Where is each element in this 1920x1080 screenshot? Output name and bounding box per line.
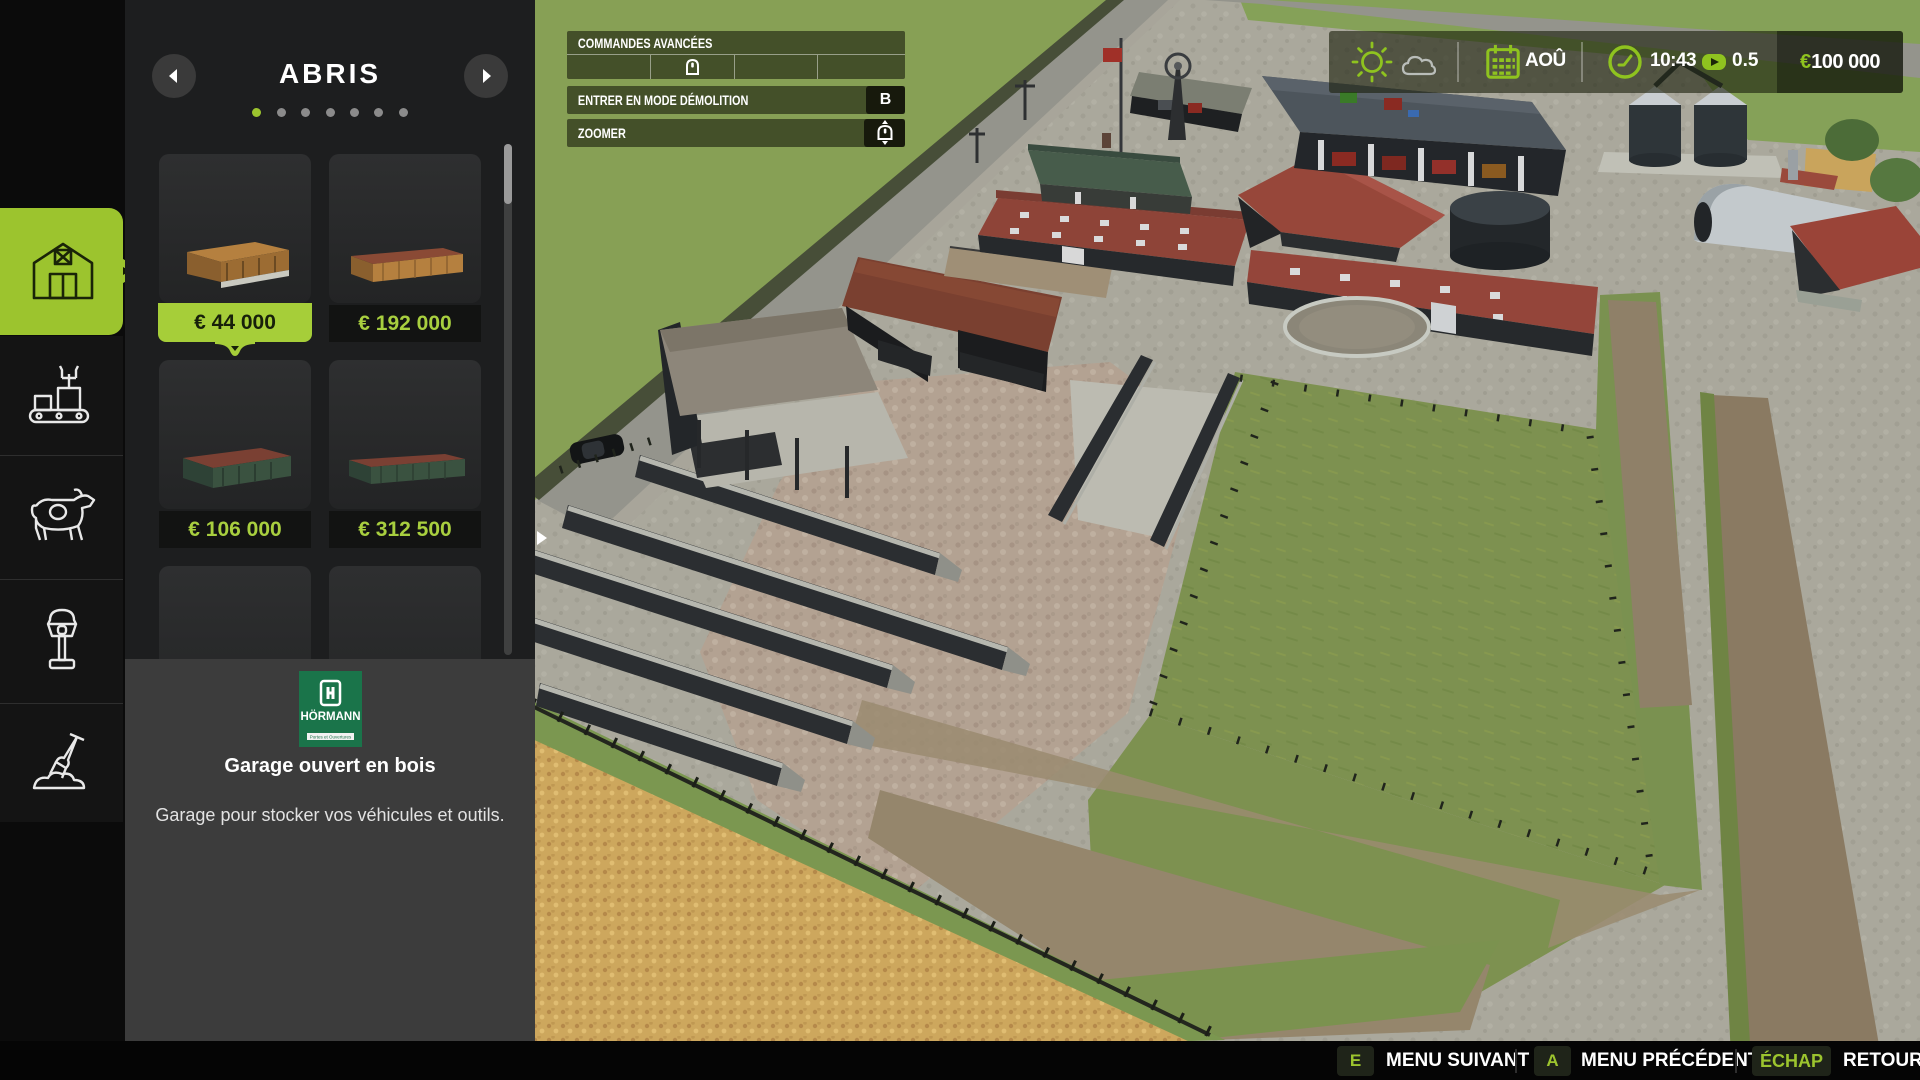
svg-text:Portes et Ouvertures: Portes et Ouvertures — [310, 735, 352, 740]
svg-text:HÖRMANN: HÖRMANN — [300, 710, 360, 723]
